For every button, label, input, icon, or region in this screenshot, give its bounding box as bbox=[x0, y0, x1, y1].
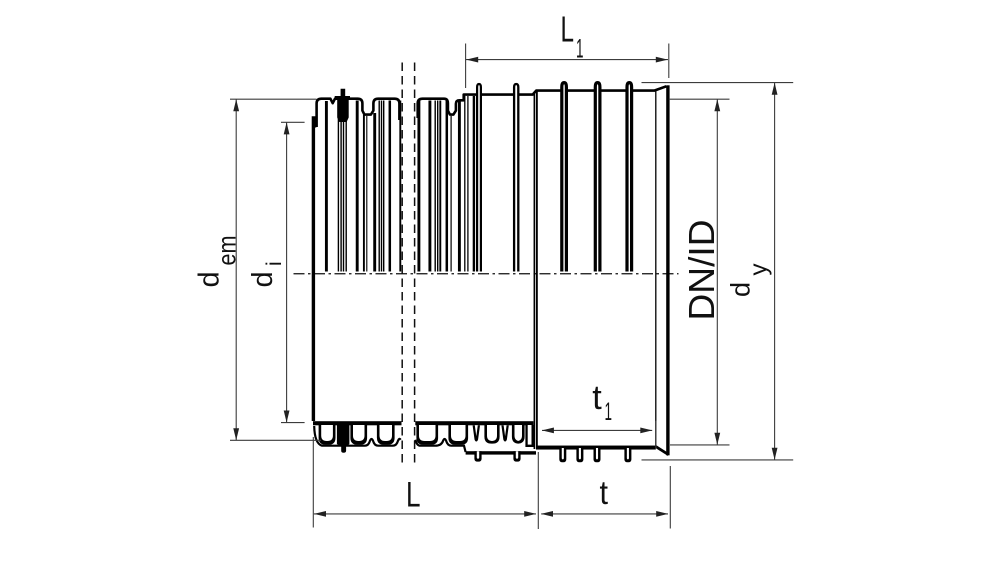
svg-text:d: d bbox=[726, 282, 756, 297]
svg-text:L: L bbox=[561, 9, 575, 50]
svg-text:t: t bbox=[592, 379, 602, 417]
svg-text:DN/ID: DN/ID bbox=[681, 220, 722, 321]
svg-text:1: 1 bbox=[605, 398, 613, 426]
svg-text:y: y bbox=[746, 264, 773, 276]
svg-text:em: em bbox=[214, 236, 242, 266]
svg-text:d: d bbox=[247, 271, 279, 287]
svg-text:L: L bbox=[406, 476, 421, 515]
svg-text:1: 1 bbox=[576, 34, 584, 64]
svg-text:d: d bbox=[193, 271, 225, 287]
svg-text:t: t bbox=[600, 474, 609, 511]
svg-text:i: i bbox=[263, 261, 286, 266]
